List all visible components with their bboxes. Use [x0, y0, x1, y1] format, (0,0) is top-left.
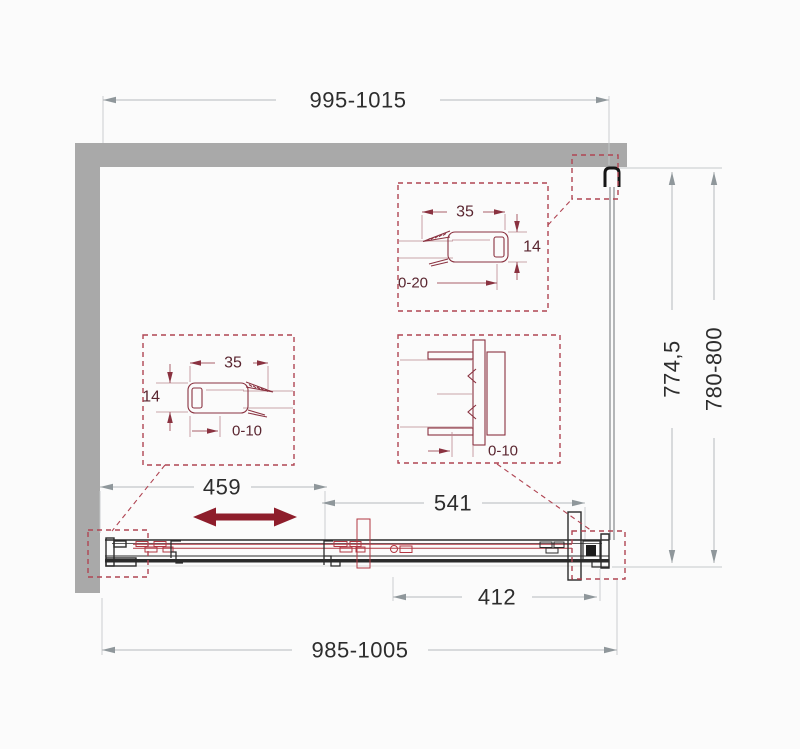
dimension-section-middle: 541 [322, 491, 585, 541]
detail-b-height-label: 14 [142, 389, 160, 406]
section-left-label: 459 [203, 475, 241, 500]
bottom-width-label: 985-1005 [312, 638, 409, 663]
callout-box-detail-middle-left [143, 335, 294, 465]
side-glass-panel [605, 168, 619, 540]
side-height-range-label: 780-800 [702, 327, 727, 411]
section-right-label: 412 [478, 585, 516, 610]
detail-c-range-label: 0-10 [488, 443, 518, 460]
track-right-endcap [583, 534, 609, 568]
detail-a-range-label: 0-20 [398, 275, 428, 292]
detail-b-width-label: 35 [224, 355, 242, 372]
dimension-side-heights: 774,5 780-800 [612, 168, 727, 567]
roller-cluster-left [136, 542, 173, 553]
callout-box-detail-middle-right [398, 335, 560, 463]
wall-left [75, 143, 100, 593]
top-width-label: 995-1015 [310, 88, 407, 113]
detail-b-range-label: 0-10 [232, 423, 262, 440]
detail-middle-right: 0-10 [400, 340, 518, 460]
callout-leader-left [112, 465, 165, 531]
detail-callout-boxes [88, 155, 625, 579]
wall-top [75, 143, 627, 167]
side-height-label: 774,5 [660, 340, 685, 398]
slide-direction-arrow-icon [193, 508, 297, 527]
callout-box-track-right [572, 531, 625, 579]
detail-a-width-label: 35 [456, 204, 474, 221]
bottom-track [105, 512, 609, 580]
walls [75, 143, 627, 593]
callout-leader-right [497, 464, 592, 531]
glass-top-clamp [605, 168, 619, 187]
detail-a-height-label: 14 [523, 239, 541, 256]
glass-panel-lines [610, 187, 614, 540]
section-middle-label: 541 [434, 491, 472, 516]
detail-middle-left: 35 14 0-10 [142, 355, 293, 440]
detail-top-right: 35 14 0-20 [398, 204, 541, 292]
callout-leader-top-right [548, 200, 571, 225]
dimension-section-right: 412 [393, 569, 600, 610]
dimension-bottom-width: 985-1005 [102, 580, 617, 663]
shower-door-plan-svg: 995-1015 774,5 780-800 459 541 [0, 0, 800, 749]
technical-drawing-canvas: 995-1015 774,5 780-800 459 541 [0, 0, 800, 749]
